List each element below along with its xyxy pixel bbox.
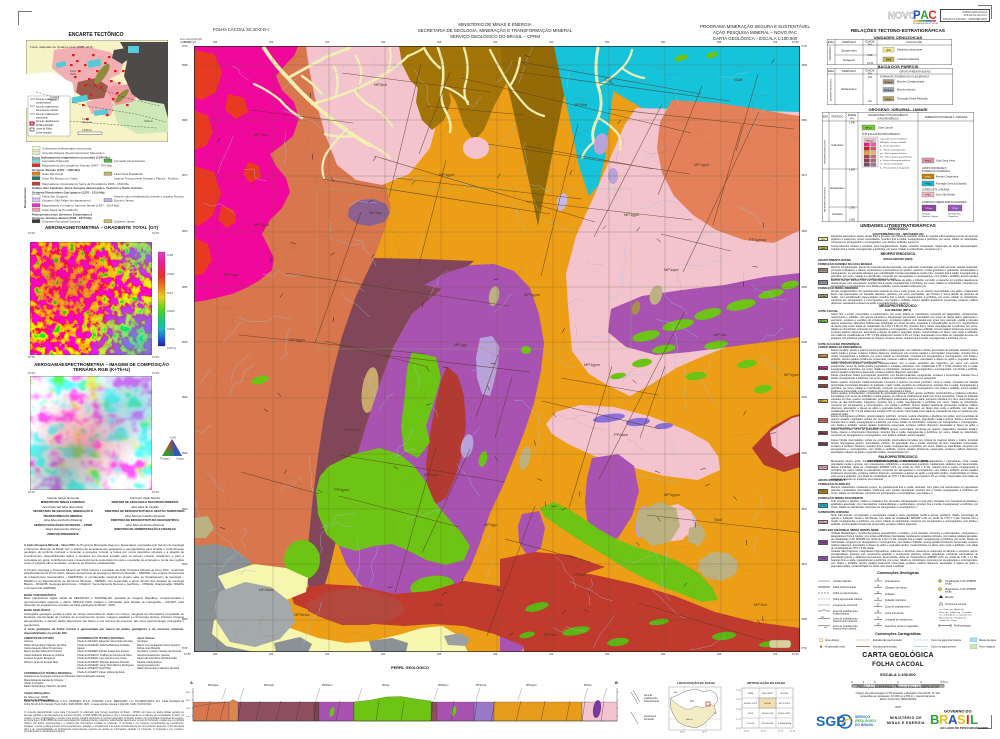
svg-text:Propriedade (vila): Propriedade (vila) [825, 646, 845, 649]
svg-text:MP1γpm: MP1γpm [866, 141, 874, 143]
svg-text:53: 53 [877, 598, 880, 600]
svg-text:Vilhena: Vilhena [144, 119, 153, 123]
svg-text:PP3af: PP3af [574, 572, 586, 577]
svg-text:2: 2 [851, 680, 853, 684]
svg-text:MP1ac: MP1ac [714, 332, 726, 337]
svg-text:MIGUELÓPOLIS: MIGUELÓPOLIS [744, 702, 758, 705]
svg-text:PERÍODO: PERÍODO [842, 69, 857, 73]
svg-text:Superfície de fluxo magmático: Superfície de fluxo magmático [885, 625, 919, 628]
svg-text:IDADE: IDADE [865, 68, 874, 72]
svg-text:AO LADO DO POVO BRASILEIRO: AO LADO DO POVO BRASILEIRO [940, 726, 989, 730]
svg-text:PP3fc: PP3fc [925, 177, 930, 179]
svg-text:NP3fcbc: NP3fcbc [884, 82, 893, 84]
svg-text:PP4ase: PP4ase [614, 432, 629, 437]
svg-text:Lineação de estiramento: Lineação de estiramento [885, 618, 913, 621]
svg-text:1.540: 1.540 [849, 122, 856, 125]
svg-text:p - Fácies charnoquito pórfiri: p - Fácies charnoquito pórfirico [880, 159, 911, 162]
svg-text:1.600: 1.600 [849, 169, 856, 172]
svg-text:Formação Serra do Expedito: Formação Serra do Expedito [936, 183, 967, 186]
svg-text:compressional: compressional [36, 102, 51, 105]
svg-text:12°30': 12°30' [736, 728, 742, 730]
svg-text:RO: RO [690, 699, 694, 703]
svg-text:au - Ouro; mg - Argila; Fe-: au - Ouro; mg - Argila; Fe- [939, 608, 965, 611]
svg-text:2.050: 2.050 [849, 219, 856, 222]
svg-text:CENOZOICO: CENOZOICO [829, 46, 832, 61]
svg-text:MP1gpd: MP1gpd [439, 172, 454, 177]
svg-text:PP3δpcm: PP3δpcm [438, 684, 448, 687]
svg-text:Clivagem de fratura: Clivagem de fratura [885, 586, 907, 589]
svg-text:MP1gpm: MP1gpm [524, 292, 541, 297]
svg-text:0.016: 0.016 [167, 327, 175, 331]
svg-text:zircão: zircão [945, 591, 952, 594]
svg-text:(Ma): (Ma) [850, 118, 855, 120]
svg-text:Q2a: Q2a [434, 602, 442, 607]
svg-text:Formação Nova Floresta: Formação Nova Floresta [114, 159, 145, 163]
svg-text:Gnaisses Jamari: Gnaisses Jamari [114, 219, 135, 223]
svg-text:B: B [615, 680, 618, 685]
svg-text:MP1lvb: MP1lvb [754, 602, 768, 607]
svg-text:61°30': 61°30' [761, 731, 767, 733]
svg-text:64°W: 64°W [680, 732, 685, 734]
svg-text:0.097: 0.097 [167, 272, 175, 276]
svg-text:Cacoal: Cacoal [132, 87, 140, 91]
svg-text:2.58: 2.58 [868, 54, 873, 57]
svg-text:MP1γp: MP1γp [382, 684, 390, 687]
svg-text:Marques: Marques [82, 120, 93, 124]
svg-text:Gnaisse Origem: Gnaisse Origem [922, 215, 938, 218]
svg-text:NP3fcb: NP3fcb [374, 82, 388, 87]
svg-text:100: 100 [186, 708, 190, 710]
svg-text:MP1γpba: MP1γpba [208, 684, 219, 687]
svg-text:Perfil geológico: Perfil geológico [954, 625, 972, 628]
svg-text:Membro Arenito: Membro Arenito [897, 88, 916, 92]
svg-text:Ediacarano: Ediacarano [841, 87, 857, 91]
svg-text:Caulim; Fn - Ferro: Caulim; Fn - Ferro [939, 619, 958, 622]
svg-text:59: 59 [877, 604, 880, 606]
svg-text:541: 541 [868, 76, 873, 79]
svg-text:300: 300 [186, 692, 190, 694]
svg-text:DO BRASIL: DO BRASIL [855, 723, 874, 727]
svg-text:Quaternário: Quaternário [841, 48, 857, 52]
svg-text:S: S [957, 712, 966, 727]
svg-text:m - Fácies monzogranítica: m - Fácies monzogranítica [880, 148, 907, 151]
svg-text:Suíte Serra Verde: Suíte Serra Verde [936, 160, 956, 163]
svg-text:PP3λmsp: PP3λmsp [476, 684, 487, 687]
svg-text:Estrada não pavimentada: Estrada não pavimentada [873, 639, 902, 642]
svg-text:MP1γpba - Fácies anfibólio: MP1γpba - Fácies anfibólio [880, 142, 907, 144]
svg-text:Cs - Calcedônia; ci - Quartzo;: Cs - Calcedônia; ci - Quartzo; sb - [939, 614, 972, 617]
svg-text:Velho: Velho [70, 72, 77, 76]
svg-text:MP1lvb: MP1lvb [544, 632, 558, 637]
svg-text:Estateriano: Estateriano [830, 186, 845, 190]
svg-text:Progresso: Progresso [948, 215, 959, 218]
svg-text:Estrada pavimentada: Estrada pavimentada [873, 646, 897, 649]
svg-text:ALTO ALEGRE: ALTO ALEGRE [762, 722, 774, 725]
svg-text:transcorrente sinistral: transcorrente sinistral [833, 620, 857, 623]
svg-text:ERA: ERA [828, 40, 834, 44]
svg-text:SUPERSUÍTE JURUENA: SUPERSUÍTE JURUENA [922, 189, 950, 192]
svg-text:Inversão Parecis (Neoproterozo: Inversão Parecis (Neoproterozoico) Mesoz… [42, 151, 105, 155]
svg-text:2: 2 [897, 680, 899, 684]
svg-text:IDADE: IDADE [848, 113, 857, 117]
svg-text:Bolívia: Bolívia [686, 719, 693, 721]
svg-text:S. FELIPE: S. FELIPE [747, 723, 756, 725]
svg-text:Acamamento: Acamamento [885, 580, 900, 583]
svg-text:NP3fcb: NP3fcb [574, 102, 588, 107]
svg-text:Formação Palmeiral: Formação Palmeiral [42, 159, 69, 163]
svg-text:MP1gpd: MP1gpd [254, 222, 269, 227]
svg-text:Unidade São: Unidade São [948, 213, 961, 216]
svg-text:200: 200 [186, 700, 190, 702]
svg-text:transcorrente sinistral: transcorrente sinistral [36, 109, 58, 112]
svg-text:PP3sr: PP3sr [925, 195, 931, 197]
svg-text:Neógeno: Neógeno [843, 58, 856, 62]
svg-text:PERÍODO: PERÍODO [832, 115, 844, 119]
svg-text:transcorrente destral: transcorrente destral [833, 627, 856, 630]
svg-text:Bauxita: Bauxita [945, 596, 954, 599]
svg-text:Zona de cisalhamento: Zona de cisalhamento [885, 606, 910, 609]
svg-text:MP1gpb: MP1gpb [624, 212, 640, 217]
svg-text:MP1αc: MP1αc [865, 128, 873, 130]
svg-text:Magmatismo e orógeno Juruena-J: Magmatismo e orógeno Juruena-Jamari (181… [42, 203, 119, 207]
svg-text:MP1gp: MP1gp [454, 342, 467, 347]
svg-text:Cobertura (M): Cobertura (M) [906, 40, 922, 44]
svg-text:AM: AM [674, 691, 677, 694]
svg-text:Ocorrência mineral: Ocorrência mineral [945, 603, 967, 606]
svg-text:N4dl: N4dl [734, 77, 742, 82]
svg-text:Coberturas sedimentares cenozo: Coberturas sedimentares cenozoicas [42, 146, 92, 150]
svg-text:L: L [970, 712, 978, 727]
svg-text:72: 72 [877, 617, 880, 619]
svg-text:Suíte Rio Pardo: Suíte Rio Pardo [42, 172, 64, 176]
svg-text:0 m: 0 m [186, 716, 190, 718]
svg-text:MP1lvpb: MP1lvpb [344, 427, 360, 432]
svg-text:PRES. MÉDICI: PRES. MÉDICI [762, 692, 774, 695]
svg-text:Zona de: Zona de [644, 695, 653, 697]
svg-text:0.024: 0.024 [167, 309, 175, 313]
svg-text:11°30': 11°30' [736, 690, 742, 692]
svg-text:[nT/m]: [nT/m] [167, 346, 176, 350]
svg-text:zircão: zircão [945, 583, 952, 586]
svg-text:indiscriminada: indiscriminada [644, 700, 659, 703]
svg-text:0: 0 [874, 680, 876, 684]
svg-text:12°15': 12°15' [736, 719, 742, 721]
svg-text:MP1gbc: MP1gbc [424, 472, 439, 477]
svg-text:NP3pr: NP3pr [885, 98, 891, 101]
svg-text:N. BRASILÂNDIA: N. BRASILÂNDIA [778, 722, 792, 725]
svg-text:TERRENOS ROOSEVELT–JURUENA: TERRENOS ROOSEVELT–JURUENA [925, 116, 968, 119]
svg-text:CACOAL: CACOAL [764, 702, 771, 705]
svg-text:Zona de cisalhamento: Zona de cisalhamento [36, 113, 59, 116]
svg-text:NP3fcbc: NP3fcbc [259, 587, 274, 592]
svg-text:MP1λvpb: MP1λvpb [264, 684, 275, 687]
svg-text:PP3δpcm: PP3δpcm [322, 684, 332, 687]
svg-text:Faixa Nova Brasilândia: Faixa Nova Brasilândia [114, 172, 143, 176]
svg-text:60°W: 60°W [702, 732, 707, 734]
svg-text:Curso de água perene: Curso de água perene [931, 646, 956, 649]
svg-text:Q2a: Q2a [604, 77, 612, 82]
svg-text:PROGRAMA MINERAÇÃO SEGURA: PROGRAMA MINERAÇÃO SEGURA [913, 22, 938, 25]
svg-text:0 100 km: 0 100 km [82, 129, 92, 132]
svg-text:Calimiano: Calimiano [831, 143, 844, 147]
svg-text:N4dl: N4dl [714, 517, 722, 522]
svg-text:γm - Fácies gnaise sienítico: γm - Fácies gnaise sienítico [880, 152, 908, 155]
svg-text:PP3gf: PP3gf [952, 208, 958, 210]
svg-text:Zona de detalhamento: Zona de detalhamento [36, 120, 60, 123]
svg-text:Lineamento: Lineamento [644, 715, 657, 718]
svg-text:Orógeno São Felipe (embasament: Orógeno São Felipe (embasamento) [42, 198, 91, 202]
svg-text:Lente intrusional: Lente intrusional [885, 612, 904, 615]
svg-text:46: 46 [877, 591, 880, 593]
svg-text:Muscovita; Sn - Estanho; Sr -: Muscovita; Sn - Estanho; Sr - [939, 616, 968, 619]
svg-text:MP1gp: MP1gp [484, 522, 497, 527]
svg-text:sh - Fácies charnoquito: sh - Fácies charnoquito [880, 163, 904, 166]
svg-text:RIOZINHO: RIOZINHO [780, 693, 789, 695]
svg-text:Formação Pedra Redonda: Formação Pedra Redonda [897, 97, 928, 101]
svg-text:Suíte São Romão: Suíte São Romão [936, 194, 956, 197]
svg-text:Massa de água: Massa de água [979, 639, 996, 642]
svg-text:SANTA LUZIA: SANTA LUZIA [762, 712, 774, 715]
svg-text:Suíte Serra da Providência: Suíte Serra da Providência [42, 208, 78, 212]
svg-text:MESOPROTEROZOICO: MESOPROTEROZOICO [825, 140, 827, 164]
svg-text:A ANOROGÊNICO: A ANOROGÊNICO [877, 117, 898, 120]
svg-text:MP1gpm: MP1gpm [664, 492, 681, 497]
svg-text:FORMAÇÃO FILADÉLFIA: FORMAÇÃO FILADÉLFIA [922, 170, 950, 173]
svg-text:Suábio-Alto Candeias, Serra-Ju: Suábio-Alto Candeias, Serra-Juruena-Jama… [32, 186, 143, 190]
svg-text:indiscriminada: indiscriminada [833, 613, 850, 616]
svg-text:12°00': 12°00' [736, 709, 742, 711]
svg-text:Limite estadual: Limite estadual [36, 131, 52, 134]
svg-text:MP1gpm: MP1gpm [584, 362, 601, 367]
svg-text:1: 1 [863, 680, 865, 684]
svg-text:PP3sv: PP3sv [925, 161, 931, 163]
svg-text:ALTA FLOREST.: ALTA FLOREST. [778, 712, 791, 715]
svg-text:NP3fcba: NP3fcba [884, 90, 893, 92]
svg-text:Magmatismo pós-orogênico Sunsá: Magmatismo pós-orogênico Sunsás (1467 - … [42, 163, 112, 167]
svg-text:0.48: 0.48 [167, 253, 173, 257]
svg-text:Foliação: Foliação [885, 593, 895, 596]
svg-text:MP1apv: MP1apv [254, 132, 269, 137]
svg-text:Orosiriano: Orosiriano [832, 213, 844, 216]
svg-text:ESP. D'OESTE: ESP. D'OESTE [779, 703, 791, 705]
svg-text:(Ma): (Ma) [868, 73, 873, 75]
svg-text:Limite da Folha: Limite da Folha [36, 128, 52, 131]
svg-text:Terra indígena: Terra indígena [979, 646, 996, 649]
svg-text:Área urbana: Área urbana [825, 639, 839, 642]
svg-text:61°45': 61°45' [744, 731, 750, 733]
svg-text:NEOPROTEROZOICO: NEOPROTEROZOICO [831, 78, 833, 101]
svg-text:Contato definido: Contato definido [833, 580, 852, 583]
svg-text:NP3fcba: NP3fcba [294, 612, 310, 617]
svg-text:ERA: ERA [823, 116, 828, 119]
svg-text:IDADE: IDADE [865, 39, 874, 43]
svg-text:extensional: extensional [36, 117, 48, 120]
svg-text:NOVO: NOVO [888, 11, 916, 22]
svg-text:Falha aproximada coberta: Falha aproximada coberta [833, 598, 863, 601]
svg-text:PP3gsb: PP3gsb [925, 208, 933, 210]
svg-text:Membro Conglomerado: Membro Conglomerado [897, 80, 925, 84]
svg-text:11°45': 11°45' [736, 699, 742, 701]
svg-text:A: A [190, 680, 193, 685]
svg-text:66: 66 [877, 611, 880, 613]
svg-text:61°00': 61°00' [790, 731, 796, 733]
svg-text:ROLIM: ROLIM [748, 713, 754, 715]
svg-text:GRUPO PIMENTA BUENO: GRUPO PIMENTA BUENO [899, 69, 930, 73]
svg-text:34: 34 [877, 579, 880, 581]
svg-text:Fonte: adaptado de Quadros et: Fonte: adaptado de Quadros et al. (2025,… [30, 45, 93, 49]
svg-text:K (%): K (%) [170, 437, 176, 440]
svg-text:MP1gpm: MP1gpm [289, 337, 306, 342]
svg-text:FORMAÇÃO FAZENDA DA CASA BRANC: FORMAÇÃO FAZENDA DA CASA BRANCA [880, 76, 929, 79]
svg-text:Th (ppm): Th (ppm) [160, 457, 170, 460]
svg-text:Domínio Jamari: Domínio Jamari [114, 198, 134, 202]
svg-text:Lineamento estrutural: Lineamento estrutural [833, 604, 858, 607]
svg-text:MP1apv: MP1apv [224, 272, 239, 277]
svg-text:Falha ou discriminada: Falha ou discriminada [833, 592, 858, 595]
svg-text:Gnaisses Roosevelt Juruena: Gnaisses Roosevelt Juruena [42, 219, 81, 223]
svg-text:MP1gse: MP1gse [784, 372, 799, 377]
svg-text:Corpo Serra da Providência: Corpo Serra da Providência [880, 138, 908, 141]
svg-text:Suíte Cacoal: Suíte Cacoal [878, 126, 893, 130]
svg-text:COMPLEXO SERRA BONITA GNAISSES: COMPLEXO SERRA BONITA GNAISSES [922, 201, 967, 204]
svg-text:fc - Fácies biotita sienograni: fc - Fácies biotita sienogranito [880, 166, 910, 169]
svg-text:PP3γsr: PP3γsr [584, 684, 592, 687]
svg-text:Membro Castanheira: Membro Castanheira [936, 176, 959, 179]
svg-text:Suíte Rio Branco ou União: Suíte Rio Branco ou União [42, 176, 78, 180]
svg-text:N4dl: N4dl [886, 58, 891, 61]
svg-text:6 Km: 6 Km [940, 680, 948, 684]
svg-text:MP1ap: MP1ap [369, 210, 382, 215]
svg-text:4: 4 [920, 680, 922, 684]
svg-text:Ouro; Gr - Grafita; agr - Casc: Ouro; Gr - Grafita; agr - Cascalho; [939, 611, 972, 614]
svg-text:SERRA: SERRA [748, 692, 755, 695]
svg-text:Depósitos aluvionares: Depósitos aluvionares [897, 48, 923, 52]
svg-text:U (ppm): U (ppm) [176, 457, 184, 460]
svg-text:78: 78 [877, 623, 880, 625]
svg-text:40: 40 [877, 585, 880, 587]
svg-text:Falha indiscriminada: Falha indiscriminada [833, 586, 857, 589]
svg-text:PALEOPROTEROZOICO: PALEOPROTEROZOICO [824, 187, 827, 212]
svg-text:B: B [930, 712, 939, 727]
svg-text:61°15': 61°15' [778, 731, 784, 733]
svg-text:ERA: ERA [828, 69, 834, 73]
svg-text:Foliação milonítica: Foliação milonítica [885, 599, 906, 602]
svg-text:MP1gpb: MP1gpb [694, 162, 710, 167]
svg-text:Q2a: Q2a [886, 49, 891, 52]
svg-text:Zona de cisalhamento: Zona de cisalhamento [36, 105, 59, 108]
svg-text:PP3gmsp: PP3gmsp [749, 237, 767, 242]
svg-text:estrutural: estrutural [644, 718, 654, 721]
svg-text:PP3gms: PP3gms [334, 487, 349, 492]
svg-text:β - Fácies granofírica: β - Fácies granofírica [880, 145, 901, 148]
svg-text:1.800: 1.800 [849, 207, 856, 210]
svg-text:Curso de água intermitente: Curso de água intermitente [931, 639, 962, 642]
svg-text:(Ma): (Ma) [868, 44, 873, 46]
svg-text:da Mineralização: da Mineralização [36, 124, 54, 127]
svg-text:0.04: 0.04 [167, 291, 173, 295]
svg-text:NA: NA [868, 100, 872, 103]
svg-text:cisalhamento: cisalhamento [644, 697, 658, 700]
svg-text:Sistema Transcorrente Sinistra: Sistema Transcorrente Sinistral e Pareci… [114, 176, 179, 180]
svg-text:PP3fq: PP3fq [925, 184, 930, 186]
svg-text:γm - Fácies gnaise granodiorít: γm - Fácies gnaise granodiorítico [880, 156, 913, 159]
svg-text:PERÍODO: PERÍODO [842, 40, 857, 44]
svg-text:SUÍTE ALCALINA PROVIDÊNCIA: SUÍTE ALCALINA PROVIDÊNCIA [862, 133, 900, 136]
svg-text:Cobertura laterítica: Cobertura laterítica [897, 57, 920, 61]
svg-text:MP1apv: MP1apv [664, 267, 679, 272]
svg-text:MP1γpbm: MP1γpbm [526, 684, 537, 687]
svg-text:Mirim: Mirim [50, 98, 56, 102]
